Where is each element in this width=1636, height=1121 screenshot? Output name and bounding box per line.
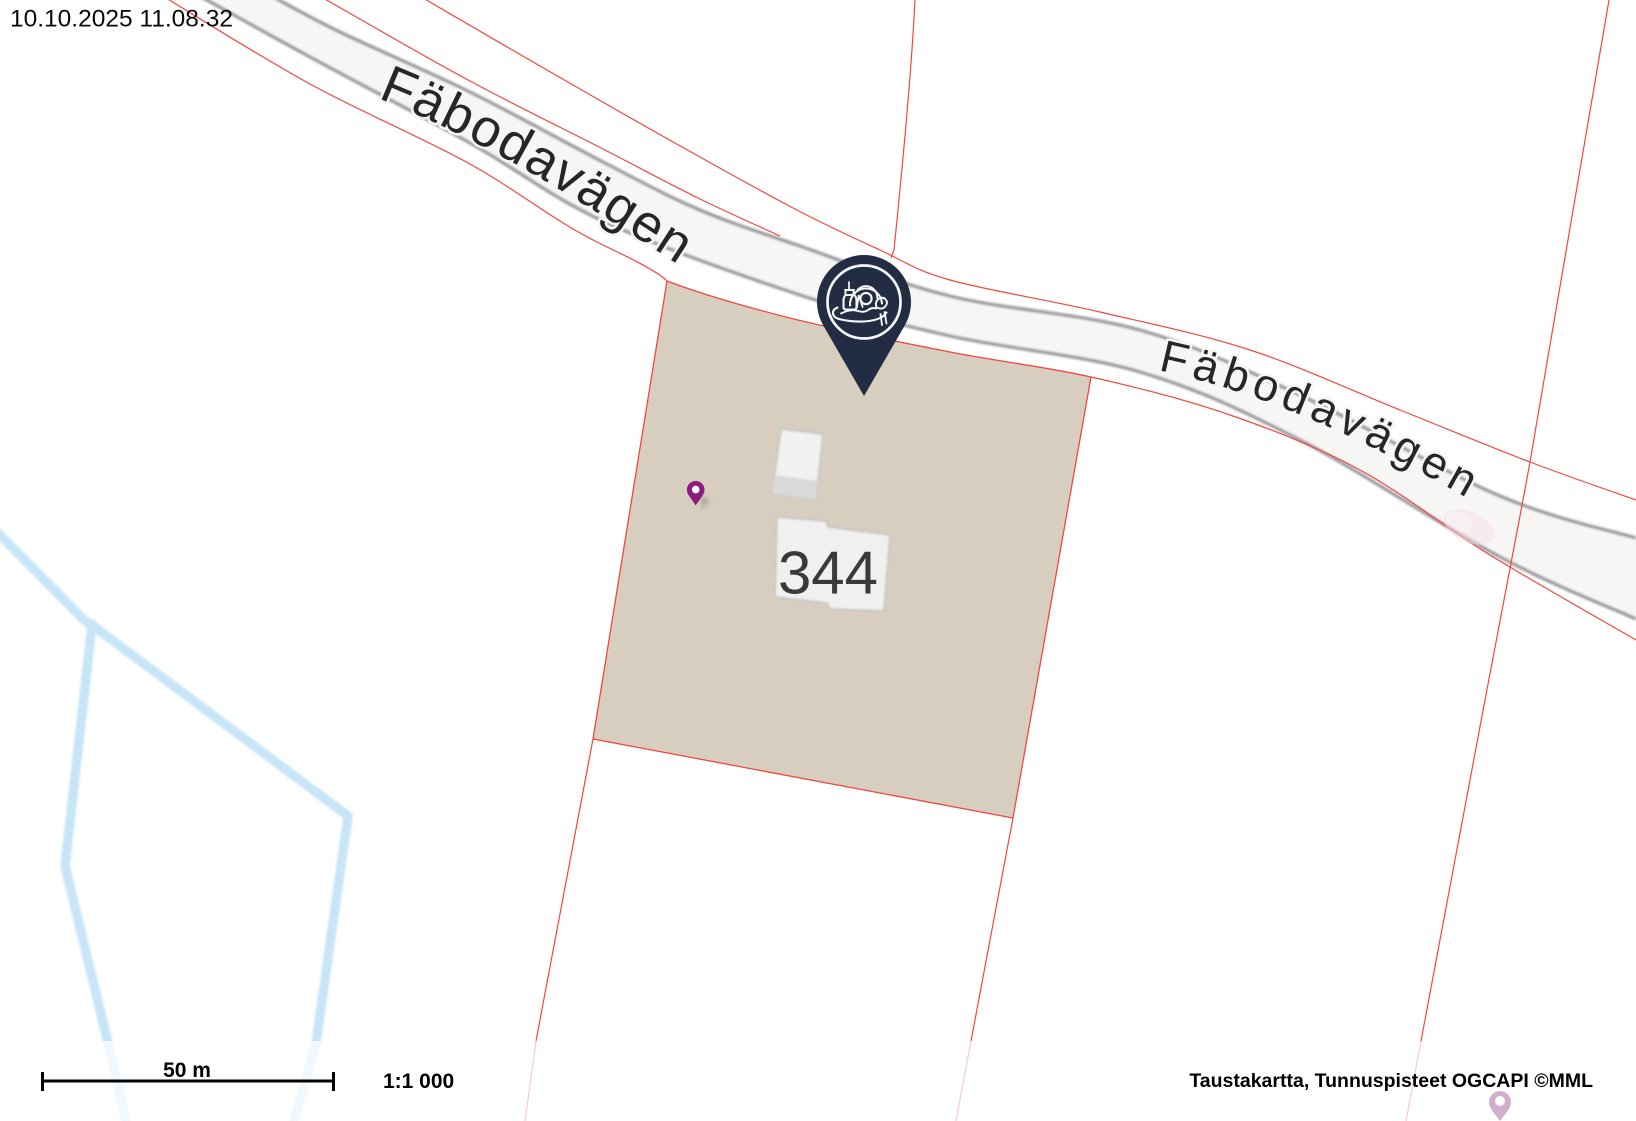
svg-text:344: 344 xyxy=(778,540,878,607)
svg-text:50 m: 50 m xyxy=(163,1059,211,1082)
svg-text:Taustakartta, Tunnuspisteet OG: Taustakartta, Tunnuspisteet OGCAPI ©MML xyxy=(1189,1070,1593,1092)
svg-text:10.10.2025 11.08.32: 10.10.2025 11.08.32 xyxy=(10,6,233,33)
svg-text:1:1 000: 1:1 000 xyxy=(383,1070,454,1093)
